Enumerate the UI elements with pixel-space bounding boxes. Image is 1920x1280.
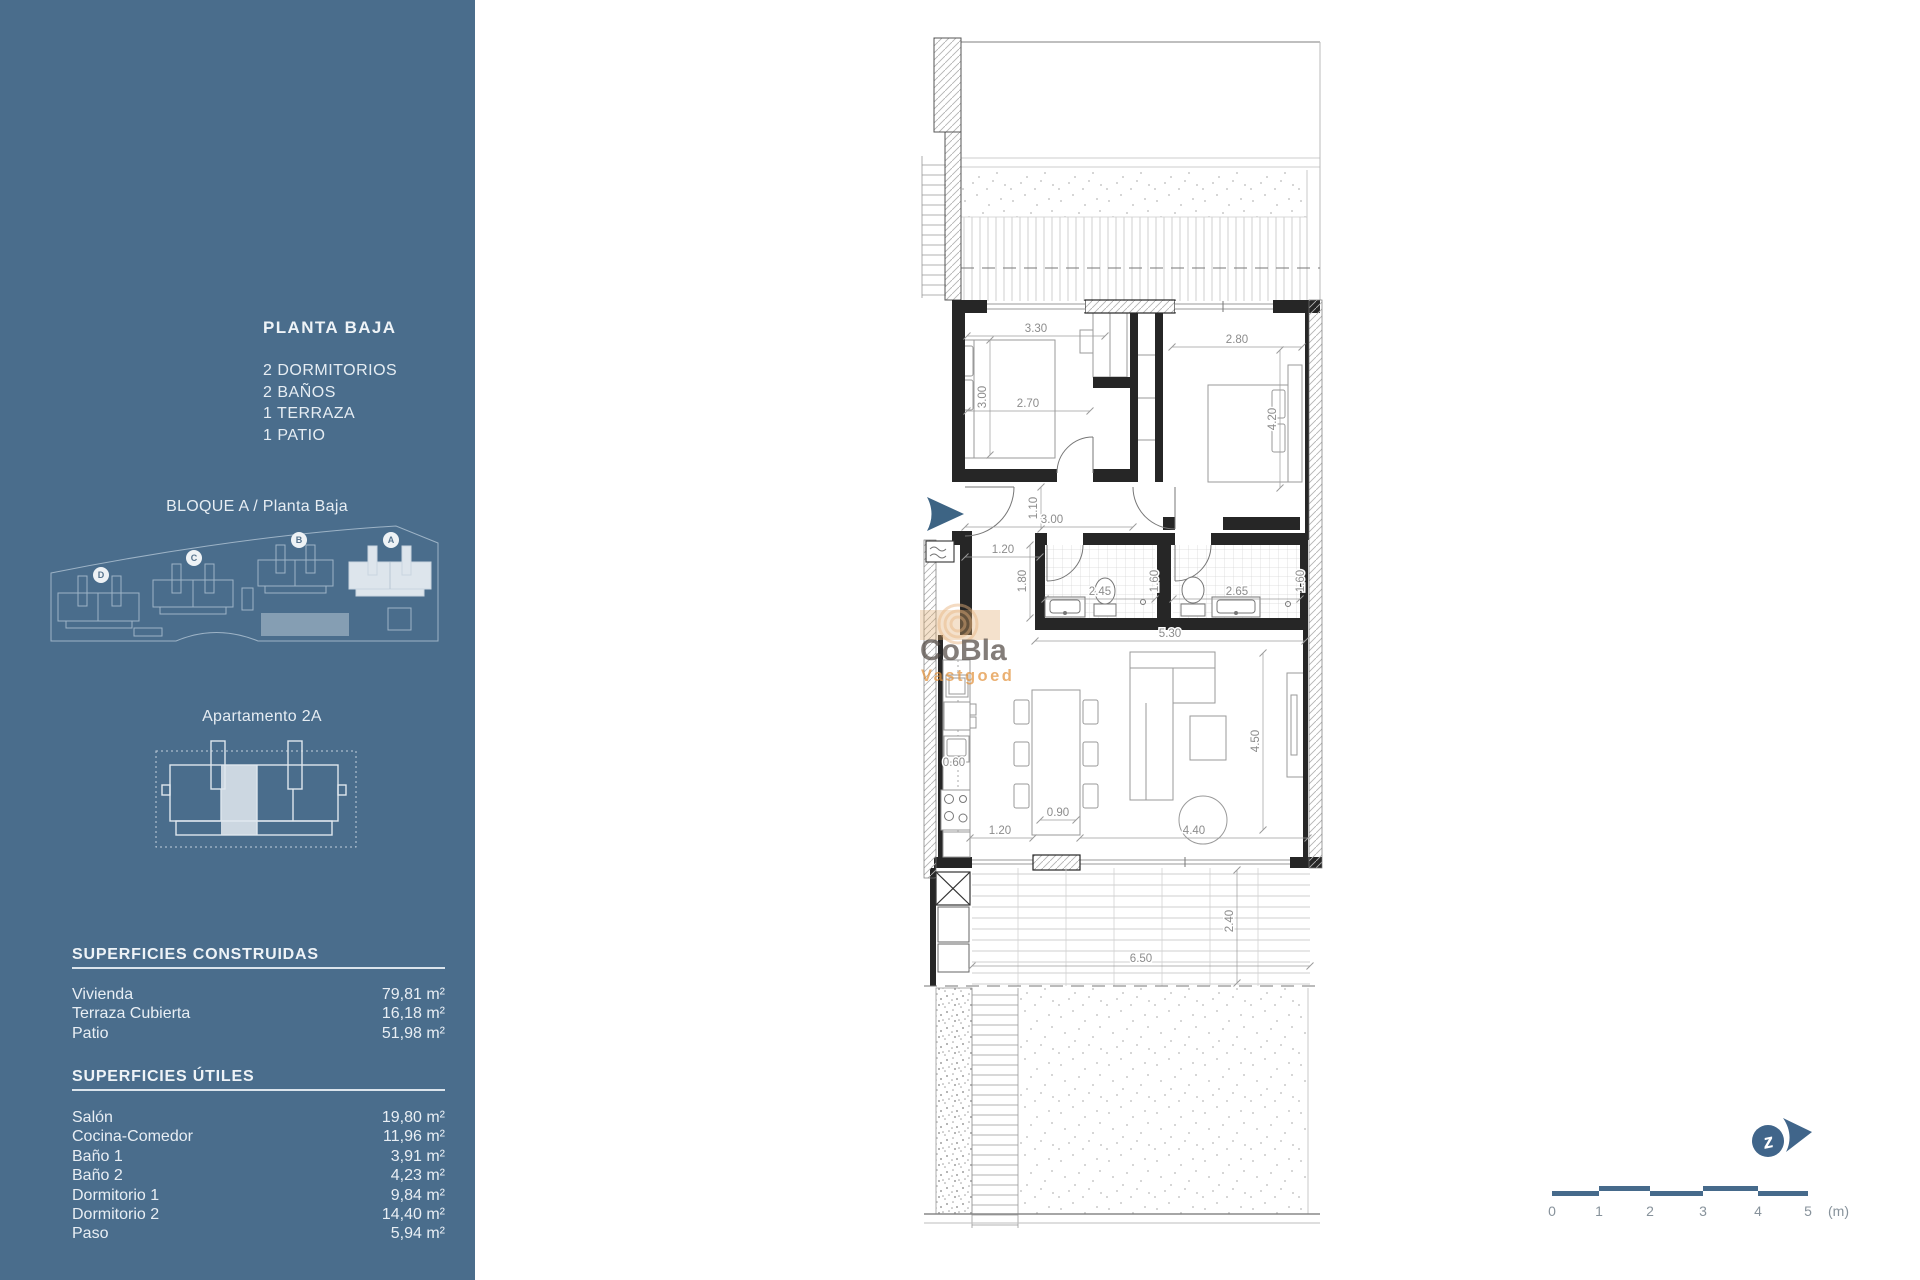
dimension-label: 2.70 bbox=[1017, 398, 1039, 410]
area-value: 5,94 m² bbox=[391, 1224, 445, 1243]
compass-logo-icon: z bbox=[1752, 1118, 1812, 1157]
site-road bbox=[261, 613, 349, 636]
window-dorm2 bbox=[1175, 301, 1273, 312]
area-row: Baño 24,23 m² bbox=[72, 1166, 445, 1185]
feature-item: 1 PATIO bbox=[263, 425, 397, 447]
gravel bbox=[1018, 988, 1308, 1214]
toilet-2 bbox=[1181, 577, 1205, 616]
dimension-label: 2.65 bbox=[1226, 586, 1248, 598]
site-block-c bbox=[153, 564, 253, 614]
site-map: DCBA bbox=[46, 518, 476, 673]
watermark: CoBla Vastgoed bbox=[920, 605, 1014, 685]
side-table bbox=[1190, 716, 1226, 760]
dimension-label: 3.00 bbox=[977, 386, 989, 408]
dimension-label: 0.60 bbox=[943, 757, 965, 769]
walkway bbox=[972, 988, 1018, 1228]
site-block-b bbox=[258, 545, 333, 593]
area-value: 4,23 m² bbox=[391, 1166, 445, 1185]
scale-label: 4 bbox=[1754, 1203, 1762, 1219]
dimension-label: 1.60 bbox=[1295, 570, 1307, 592]
terrace-cabinet bbox=[938, 907, 969, 942]
feature-item: 2 DORMITORIOS bbox=[263, 360, 397, 382]
wardrobe bbox=[1138, 355, 1155, 440]
block-label: BLOQUE A / Planta Baja bbox=[40, 498, 474, 516]
apartment-label: Apartamento 2A bbox=[40, 708, 484, 726]
area-label: Paso bbox=[72, 1224, 108, 1243]
area-row: Patio51,98 m² bbox=[72, 1024, 445, 1043]
pillar bbox=[1033, 855, 1080, 870]
dimension-label: 2.40 bbox=[1224, 910, 1236, 932]
scale-label: 3 bbox=[1699, 1203, 1707, 1219]
party-wall bbox=[1309, 300, 1322, 868]
area-row: Dormitorio 214,40 m² bbox=[72, 1205, 445, 1224]
scale-label: 2 bbox=[1646, 1203, 1654, 1219]
sliding-door bbox=[1080, 857, 1290, 867]
area-row: Salón19,80 m² bbox=[72, 1108, 445, 1127]
scale-label: 5 bbox=[1804, 1203, 1812, 1219]
dimension-label: 5.30 bbox=[1159, 628, 1181, 640]
area-value: 14,40 m² bbox=[382, 1205, 445, 1224]
dimension-label: 2.45 bbox=[1089, 586, 1111, 598]
feature-list: 2 DORMITORIOS2 BAÑOS1 TERRAZA1 PATIO bbox=[263, 360, 397, 446]
area-label: Baño 2 bbox=[72, 1166, 123, 1185]
area-label: Dormitorio 1 bbox=[72, 1186, 159, 1205]
feature-item: 2 BAÑOS bbox=[263, 382, 397, 404]
feature-item: 1 TERRAZA bbox=[263, 403, 397, 425]
party-wall bbox=[945, 132, 961, 300]
area-row: Terraza Cubierta16,18 m² bbox=[72, 1004, 445, 1023]
kitchen-window bbox=[972, 860, 1033, 864]
superficies-construidas-table: Vivienda79,81 m²Terraza Cubierta16,18 m²… bbox=[72, 985, 445, 1043]
block-badge-letter: D bbox=[98, 570, 105, 580]
site-block-d bbox=[58, 576, 162, 636]
entrance-arrow-icon bbox=[927, 497, 964, 531]
site-block-a bbox=[349, 546, 431, 630]
upper-terrace bbox=[961, 42, 1320, 301]
block-badge-letter: A bbox=[388, 535, 395, 545]
bbq bbox=[936, 872, 970, 905]
area-label: Cocina-Comedor bbox=[72, 1127, 193, 1146]
area-value: 16,18 m² bbox=[382, 1004, 445, 1023]
area-row: Dormitorio 19,84 m² bbox=[72, 1186, 445, 1205]
terrace-cabinet bbox=[938, 944, 969, 972]
party-wall bbox=[924, 540, 936, 878]
divider bbox=[72, 967, 445, 969]
dimension-label: 1.60 bbox=[1149, 570, 1161, 592]
neighbor-stairs bbox=[922, 156, 946, 298]
area-row: Cocina-Comedor11,96 m² bbox=[72, 1127, 445, 1146]
superficies-utiles-title: SUPERFICIES ÚTILES bbox=[72, 1068, 445, 1086]
dimension-label: 1.20 bbox=[992, 544, 1014, 556]
brochure-page: PLANTA BAJA 2 DORMITORIOS2 BAÑOS1 TERRAZ… bbox=[0, 0, 1920, 1280]
area-value: 11,96 m² bbox=[383, 1127, 445, 1146]
dimension-label: 4.20 bbox=[1267, 408, 1279, 430]
closet-1 bbox=[1093, 313, 1127, 377]
dimension-label: 1.10 bbox=[1028, 497, 1040, 519]
watermark-line2: Vastgoed bbox=[921, 667, 1014, 685]
scale-bar-labels: 012345 bbox=[1548, 1203, 1812, 1219]
stove bbox=[941, 790, 970, 830]
area-value: 3,91 m² bbox=[391, 1147, 445, 1166]
scale-bar-unit: (m) bbox=[1828, 1203, 1849, 1219]
floor-plan: 3.303.002.702.804.201.103.001.201.802.45… bbox=[895, 30, 1365, 1242]
patio bbox=[924, 988, 1320, 1228]
area-value: 79,81 m² bbox=[382, 985, 445, 1004]
area-label: Vivienda bbox=[72, 985, 133, 1004]
superficies-construidas-title: SUPERFICIES CONSTRUIDAS bbox=[72, 946, 445, 964]
area-label: Dormitorio 2 bbox=[72, 1205, 159, 1224]
area-row: Baño 13,91 m² bbox=[72, 1147, 445, 1166]
meter-niche bbox=[926, 541, 954, 562]
deck-strip bbox=[961, 217, 1307, 301]
area-value: 51,98 m² bbox=[382, 1024, 445, 1043]
scale-label: 1 bbox=[1595, 1203, 1603, 1219]
area-row: Vivienda79,81 m² bbox=[72, 985, 445, 1004]
area-value: 9,84 m² bbox=[391, 1186, 445, 1205]
bed-2 bbox=[1208, 365, 1302, 482]
dimension-label: 1.80 bbox=[1017, 570, 1029, 592]
page-title: PLANTA BAJA bbox=[263, 318, 396, 338]
tv-unit bbox=[1287, 673, 1304, 777]
area-label: Terraza Cubierta bbox=[72, 1004, 190, 1023]
dimension-label: 2.80 bbox=[1226, 334, 1248, 346]
dimension-label: 6.50 bbox=[1130, 953, 1152, 965]
area-label: Patio bbox=[72, 1024, 108, 1043]
sink-1 bbox=[1045, 597, 1085, 617]
brand-and-scale: z 012345 (m) bbox=[1540, 1105, 1920, 1245]
block-badge-letter: B bbox=[296, 535, 303, 545]
dimension-label: 4.40 bbox=[1183, 825, 1205, 837]
dimension-label: 4.50 bbox=[1250, 730, 1262, 752]
scale-bar bbox=[1552, 1186, 1808, 1196]
area-row: Paso5,94 m² bbox=[72, 1224, 445, 1243]
sink-2 bbox=[1212, 597, 1260, 617]
bed-1 bbox=[958, 340, 1055, 458]
info-panel: PLANTA BAJA 2 DORMITORIOS2 BAÑOS1 TERRAZ… bbox=[0, 0, 475, 1280]
highlighted-unit bbox=[221, 765, 257, 835]
dimension-label: 1.20 bbox=[989, 825, 1011, 837]
area-label: Baño 1 bbox=[72, 1147, 123, 1166]
party-wall bbox=[934, 38, 961, 132]
watermark-line1: CoBla bbox=[920, 634, 1007, 667]
dimension-label: 3.30 bbox=[1025, 323, 1047, 335]
door-dorm1 bbox=[1057, 437, 1093, 473]
dimension-label: 3.00 bbox=[1041, 514, 1063, 526]
superficies-utiles-table: Salón19,80 m²Cocina-Comedor11,96 m²Baño … bbox=[72, 1108, 445, 1244]
planting-bed bbox=[936, 988, 972, 1214]
gravel-strip bbox=[961, 170, 1307, 217]
area-value: 19,80 m² bbox=[382, 1108, 445, 1127]
apartment-diagram bbox=[148, 733, 378, 861]
block-badge-letter: C bbox=[191, 553, 198, 563]
window-dorm1 bbox=[987, 301, 1085, 312]
dimension-label: 0.90 bbox=[1047, 807, 1069, 819]
divider bbox=[72, 1089, 445, 1091]
covered-terrace bbox=[924, 868, 1320, 986]
fridge bbox=[944, 702, 970, 730]
scale-label: 0 bbox=[1548, 1203, 1556, 1219]
door-entrance bbox=[965, 487, 1014, 536]
area-label: Salón bbox=[72, 1108, 113, 1127]
